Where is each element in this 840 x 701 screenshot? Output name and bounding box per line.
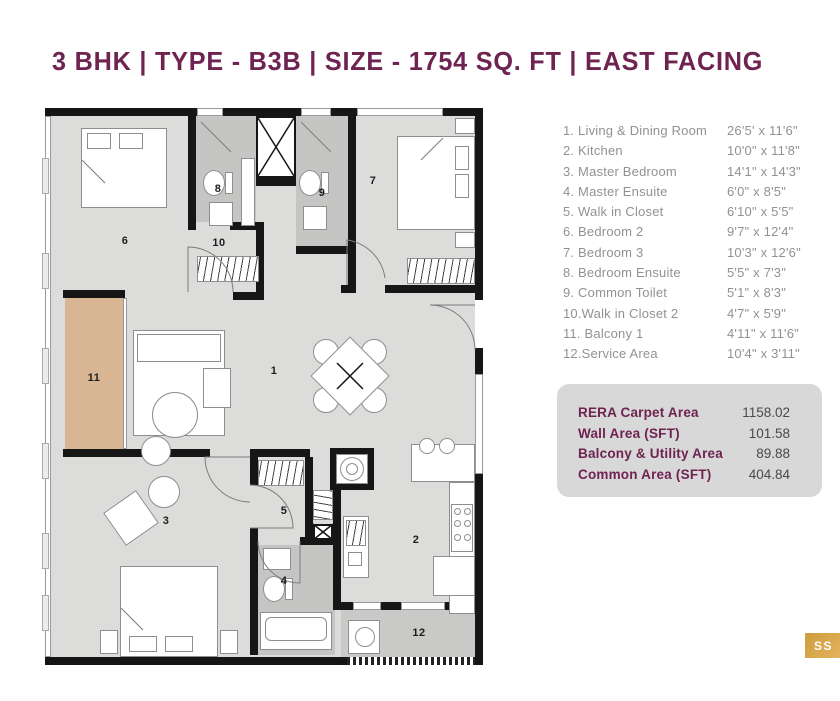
door-arcs <box>45 108 490 665</box>
room-legend: 1. Living & Dining Room 26'5' x 11'6" 2.… <box>563 121 815 365</box>
legend-room-name: 9. Common Toilet <box>563 283 727 303</box>
legend-room-dimension: 26'5' x 11'6" <box>727 121 815 141</box>
legend-room-dimension: 5'1" x 8'3" <box>727 283 815 303</box>
legend-room-dimension: 5'5" x 7'3" <box>727 263 815 283</box>
area-value: 101.58 <box>749 424 790 445</box>
legend-row: 8. Bedroom Ensuite 5'5" x 7'3" <box>563 263 815 283</box>
area-value: 1158.02 <box>742 403 790 424</box>
legend-room-name: 2. Kitchen <box>563 141 727 161</box>
legend-row: 5. Walk in Closet 6'10" x 5'5" <box>563 202 815 222</box>
legend-row: 3. Master Bedroom 14'1" x 14'3" <box>563 162 815 182</box>
legend-room-dimension: 6'10" x 5'5" <box>727 202 815 222</box>
room-number-12: 12 <box>412 627 425 639</box>
legend-room-dimension: 9'7" x 12'4" <box>727 222 815 242</box>
room-number-4: 4 <box>281 575 288 587</box>
floor-plan: 123456789101112 <box>45 108 490 665</box>
legend-row: 10.Walk in Closet 2 4'7" x 5'9" <box>563 304 815 324</box>
area-row: Wall Area (SFT) 101.58 <box>578 424 790 445</box>
room-number-10: 10 <box>212 237 225 249</box>
room-number-9: 9 <box>319 187 326 199</box>
legend-room-name: 1. Living & Dining Room <box>563 121 727 141</box>
legend-room-dimension: 10'3" x 12'6" <box>727 243 815 263</box>
legend-row: 6. Bedroom 2 9'7" x 12'4" <box>563 222 815 242</box>
area-value: 404.84 <box>749 465 790 486</box>
legend-room-name: 10.Walk in Closet 2 <box>563 304 727 324</box>
legend-room-name: 11. Balcony 1 <box>563 324 727 344</box>
area-summary-box: RERA Carpet Area 1158.02 Wall Area (SFT)… <box>557 384 822 497</box>
legend-row: 9. Common Toilet 5'1" x 8'3" <box>563 283 815 303</box>
legend-row: 4. Master Ensuite 6'0" x 8'5" <box>563 182 815 202</box>
area-label: Common Area (SFT) <box>578 465 749 486</box>
area-row: Balcony & Utility Area 89.88 <box>578 444 790 465</box>
legend-room-name: 4. Master Ensuite <box>563 182 727 202</box>
legend-room-name: 12.Service Area <box>563 344 727 364</box>
page-title: 3 BHK | TYPE - B3B | SIZE - 1754 SQ. FT … <box>52 46 789 77</box>
legend-room-name: 6. Bedroom 2 <box>563 222 727 242</box>
legend-row: 1. Living & Dining Room 26'5' x 11'6" <box>563 121 815 141</box>
legend-row: 2. Kitchen 10'0" x 11'8" <box>563 141 815 161</box>
room-number-3: 3 <box>163 515 170 527</box>
legend-row: 12.Service Area 10'4" x 3'11" <box>563 344 815 364</box>
legend-row: 11. Balcony 1 4'11" x 11'6" <box>563 324 815 344</box>
room-number-5: 5 <box>281 505 288 517</box>
legend-room-name: 8. Bedroom Ensuite <box>563 263 727 283</box>
room-number-8: 8 <box>215 183 222 195</box>
legend-room-dimension: 14'1" x 14'3" <box>727 162 815 182</box>
room-number-11: 11 <box>88 372 101 384</box>
area-value: 89.88 <box>756 444 790 465</box>
room-number-7: 7 <box>370 175 377 187</box>
legend-room-dimension: 10'4" x 3'11" <box>727 344 815 364</box>
area-label: RERA Carpet Area <box>578 403 742 424</box>
legend-room-dimension: 4'11" x 11'6" <box>727 324 815 344</box>
legend-room-dimension: 4'7" x 5'9" <box>727 304 815 324</box>
room-number-6: 6 <box>122 235 129 247</box>
legend-room-name: 7. Bedroom 3 <box>563 243 727 263</box>
legend-room-dimension: 6'0" x 8'5" <box>727 182 815 202</box>
brand-watermark-tag: SS <box>805 633 840 658</box>
area-row: RERA Carpet Area 1158.02 <box>578 403 790 424</box>
room-number-1: 1 <box>271 365 278 377</box>
legend-room-name: 3. Master Bedroom <box>563 162 727 182</box>
room-number-2: 2 <box>413 534 420 546</box>
area-label: Wall Area (SFT) <box>578 424 749 445</box>
area-label: Balcony & Utility Area <box>578 444 756 465</box>
legend-room-name: 5. Walk in Closet <box>563 202 727 222</box>
legend-row: 7. Bedroom 3 10'3" x 12'6" <box>563 243 815 263</box>
legend-room-dimension: 10'0" x 11'8" <box>727 141 815 161</box>
brand-watermark-text: SS <box>814 639 833 653</box>
area-row: Common Area (SFT) 404.84 <box>578 465 790 486</box>
